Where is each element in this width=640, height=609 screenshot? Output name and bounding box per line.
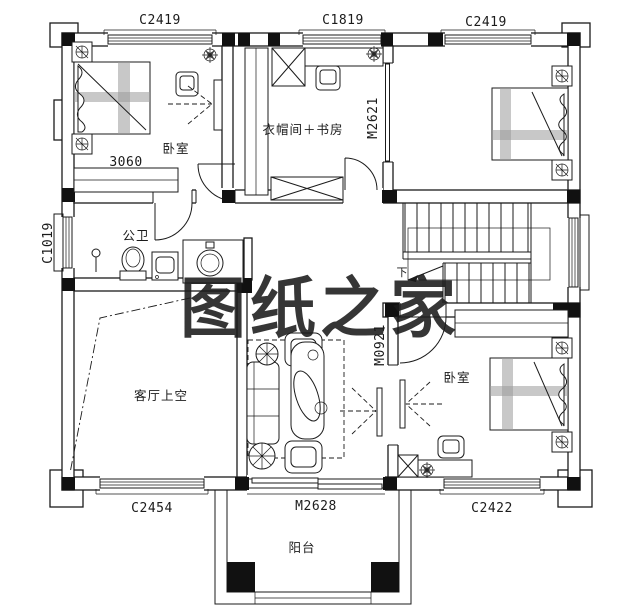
toilet-icon xyxy=(120,247,146,280)
door-m2628-balcony-sliding xyxy=(247,475,385,492)
label-window-bottom-left: C2454 xyxy=(131,501,173,516)
window-c2454-bottom-left xyxy=(96,475,208,494)
wardrobe-bedroom-top-left xyxy=(74,168,178,192)
label-window-top-right: C2419 xyxy=(465,15,507,30)
window-c2419-top-right xyxy=(441,30,535,48)
label-dimension-3060: 3060 xyxy=(109,155,142,170)
void-diagonal-marks xyxy=(70,298,190,473)
cabinet-cloakroom-bottom xyxy=(271,177,343,200)
cabinet-bedroom-br xyxy=(398,455,418,477)
window-c1819-top-middle xyxy=(299,30,385,48)
watermark-text: 图纸之家 xyxy=(180,269,460,347)
label-door-balcony: M2628 xyxy=(295,499,337,514)
door-cloakroom xyxy=(345,158,377,190)
sofa-set xyxy=(247,333,344,473)
label-window-left: C1019 xyxy=(41,222,56,264)
label-door-cloakroom: M2621 xyxy=(366,97,381,139)
washing-machine-icon xyxy=(152,252,178,280)
label-room-bathroom: 公卫 xyxy=(122,228,149,243)
wardrobe-bedroom-bottom-right xyxy=(455,310,568,337)
label-room-balcony: 阳台 xyxy=(288,540,315,555)
door-m2621-cloakroom-sliding xyxy=(386,64,390,161)
floor-plan-page: C2419 C1819 C2419 C2454 M2628 C2422 C101… xyxy=(0,0,640,609)
bed-top-left xyxy=(72,42,150,154)
label-room-living-void: 客厅上空 xyxy=(134,388,188,403)
bed-bottom-right xyxy=(490,338,572,452)
label-window-top-middle: C1819 xyxy=(322,13,364,28)
desk-chair-bedroom-top-left xyxy=(168,72,222,130)
label-room-bedroom-br: 卧室 xyxy=(443,370,470,385)
label-window-bottom-right: C2422 xyxy=(471,501,513,516)
window-c1019-left xyxy=(54,214,76,271)
bathroom-fixtures xyxy=(92,247,178,280)
chair-cloakroom xyxy=(316,66,340,90)
door-bathroom xyxy=(155,203,192,240)
shower-head-icon xyxy=(92,249,100,272)
label-room-cloakroom-study: 衣帽间＋书房 xyxy=(262,122,343,137)
label-room-bedroom-tl: 卧室 xyxy=(162,141,189,156)
window-c2419-top-left xyxy=(104,30,216,48)
window-c2422-bottom-right xyxy=(440,475,544,494)
bed-top-right xyxy=(492,66,572,180)
floor-plan-canvas: C2419 C1819 C2419 C2454 M2628 C2422 C101… xyxy=(0,0,640,609)
label-window-top-left: C2419 xyxy=(139,13,181,28)
window-stair-right xyxy=(566,215,589,290)
